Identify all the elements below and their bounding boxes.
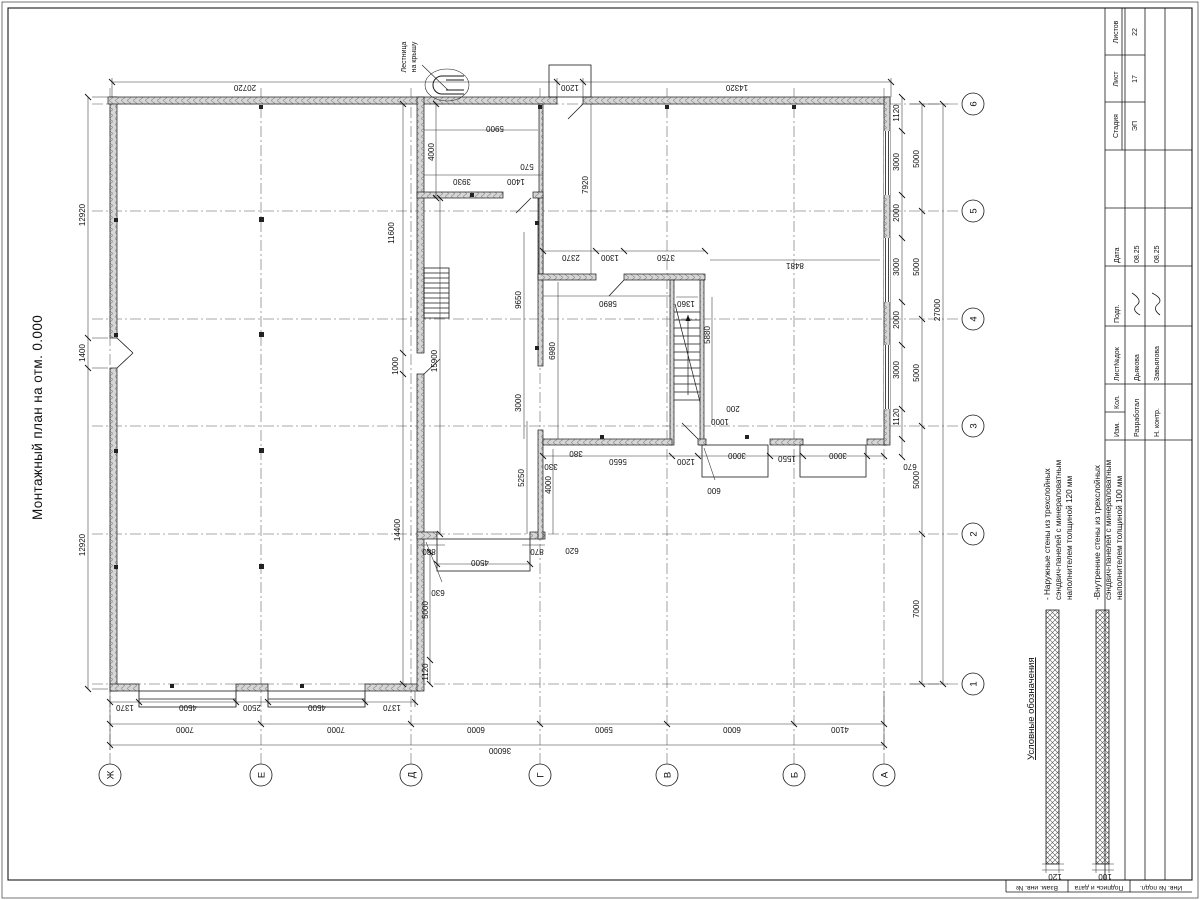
dimension-label: 880: [422, 547, 436, 556]
dimension-label: 870: [530, 547, 544, 556]
dimension-label: 2370: [562, 253, 580, 262]
legend-sample-inner-wall: [1096, 610, 1109, 864]
dimension-label: 670: [903, 462, 917, 471]
dimension-label: 630: [431, 588, 445, 597]
axis-bubble-number: 5: [962, 200, 984, 222]
legend: Условные обозначения 120 - Наружные стен…: [1026, 459, 1124, 881]
dimension-label: 1200: [561, 83, 579, 92]
dimension-label: 8481: [786, 261, 804, 270]
dimension-label: 4000: [544, 476, 553, 494]
dimension-label: 1360: [677, 299, 695, 308]
dimension-label: 3000: [892, 153, 901, 171]
dimension-label: 1370: [383, 703, 401, 712]
walls: [108, 97, 890, 691]
dimension-label: 3000: [829, 451, 847, 460]
dimension-label: 5000: [421, 601, 430, 619]
legend-text: -Внутренние стены из трехслойных: [1093, 465, 1102, 600]
axis-letter: Ж: [106, 770, 117, 779]
axis-bubble-letter: Е: [250, 764, 272, 786]
dimension-label: 3750: [657, 253, 675, 262]
axis-number: 1: [969, 681, 980, 686]
dimension-label: 11600: [387, 222, 396, 244]
door-leaves: [117, 104, 698, 439]
dimension-label: 5650: [609, 457, 627, 466]
dimension-label: 3000: [728, 451, 746, 460]
dimension-label: 1550: [778, 454, 796, 463]
dimension-label: 7000: [327, 725, 345, 734]
dimension-label: 14400: [393, 518, 402, 541]
stamp-role: Разработал: [1133, 399, 1141, 437]
axis-number: 2: [969, 531, 980, 536]
dimension-label: 330: [544, 462, 558, 471]
axis-letter: А: [880, 771, 891, 778]
dimension-label: 5000: [912, 258, 921, 276]
axis-bubble-letter: Б: [783, 764, 805, 786]
gates-and-porches: [139, 65, 866, 707]
roof-ladder-label: Лестница: [401, 41, 408, 72]
dimension-label: 620: [565, 546, 579, 555]
stamp-stage-label: Стадия: [1113, 114, 1120, 138]
dimension-label: 1400: [78, 344, 87, 362]
stamp-sheet-label: Лист: [1113, 71, 1120, 87]
stamp-sheets-label: Листов: [1113, 20, 1120, 43]
dimension-label: 4000: [427, 143, 436, 161]
axis-bubble-number: 6: [962, 93, 984, 115]
stamp-role: Н. контр.: [1154, 408, 1161, 437]
axis-number: 4: [969, 316, 980, 321]
dimension-label: 7000: [912, 600, 921, 618]
axis-number: 5: [969, 208, 980, 213]
dimension-label: 6980: [548, 342, 557, 360]
stair-2: [674, 304, 700, 402]
dimension-label: 14320: [725, 83, 748, 92]
margin-field: Взам. инв. №: [1016, 884, 1058, 891]
dimension-label: 5000: [912, 364, 921, 382]
axis-bubble-letter: А: [873, 764, 895, 786]
dimension-label: 5000: [912, 471, 921, 489]
roof-ladder-icon: [422, 65, 469, 101]
dimension-label: 9650: [514, 291, 523, 309]
dimension-label: 5900: [595, 725, 613, 734]
axis-number: 6: [969, 101, 980, 106]
legend-text: наполнителем толщиной 100 мм: [1115, 475, 1124, 600]
axis-bubble-number: 3: [962, 415, 984, 437]
stamp-col: Подп.: [1114, 304, 1121, 323]
dimension-label: 1120: [892, 104, 901, 122]
dimension-label: 27000: [933, 298, 942, 321]
dimension-label: 12920: [78, 203, 87, 226]
dimension-label: 200: [726, 404, 740, 413]
roof-ladder-label: на крышу: [411, 41, 418, 72]
grid-axis-lines: [92, 88, 960, 764]
axis-bubbles-numbers: 1 2 3 4 5 6: [962, 93, 984, 695]
page-title: Монтажный план на отм. 0.000: [30, 315, 45, 520]
axis-bubble-number: 1: [962, 673, 984, 695]
margin-field: Подпись и дата: [1074, 884, 1123, 891]
dimension-label: 3930: [453, 177, 471, 186]
legend-text: - Наружные стены из трехслойных: [1043, 468, 1052, 600]
margin-field: Инв. № подл.: [1140, 884, 1182, 891]
dimension-label: 4500: [179, 703, 197, 712]
dimension-label: 6000: [467, 725, 485, 734]
dimension-label: 6000: [723, 725, 741, 734]
stamp-col: Кол.: [1114, 395, 1121, 409]
dimension-label: 1400: [507, 177, 525, 186]
legend-sample-outer-wall: [1046, 610, 1059, 864]
dimension-label: 4500: [471, 558, 489, 567]
dimension-label: 2500: [243, 703, 261, 712]
dimension-label: 2000: [892, 204, 901, 222]
legend-text: сэндвич-панелей с минераловатным: [1054, 459, 1063, 600]
signature: [1132, 293, 1140, 315]
dimension-label: 3000: [892, 361, 901, 379]
legend-title: Условные обозначения: [1026, 657, 1037, 760]
stamp-sheet-value: 17: [1132, 75, 1139, 83]
axis-bubble-number: 2: [962, 523, 984, 545]
dimension-label: 12920: [78, 533, 87, 556]
sheet-edge: [2, 2, 1198, 898]
stamp-sheets-value: 22: [1132, 28, 1139, 36]
dimension-label: 20720: [233, 83, 256, 92]
legend-text: наполнителем толщиной 120 мм: [1065, 475, 1074, 600]
dimension-label: 600: [707, 486, 721, 495]
dimension-label: 5880: [703, 326, 712, 344]
dimension-label: 7000: [176, 725, 194, 734]
axis-bubble-letter: Д: [400, 764, 422, 786]
axis-letter: Б: [790, 772, 801, 778]
dimension-label: 15900: [430, 349, 439, 372]
signature: [1152, 293, 1160, 315]
dimension-label: 4500: [308, 703, 326, 712]
axis-letter: Д: [407, 771, 418, 778]
legend-thickness: 120: [1048, 872, 1062, 881]
axis-letter: В: [663, 772, 674, 778]
dimension-label: 570: [520, 162, 534, 171]
dimension-label: 7920: [581, 176, 590, 194]
dimension-label: 2000: [892, 311, 901, 329]
dimension-label: 1000: [711, 417, 729, 426]
title-block: Изм. Кол. Лист№док Подп. Дата Разработал…: [1105, 8, 1192, 880]
dimension-label: 1300: [601, 253, 619, 262]
axis-bubbles-letters: Ж Е Д Г В Б А: [99, 764, 895, 786]
dimension-label: 36000: [488, 746, 511, 755]
stamp-date: 08.25: [1154, 245, 1161, 263]
dimension-label: 5250: [517, 469, 526, 487]
dimension-label: 5000: [912, 150, 921, 168]
dimension-label: 1000: [391, 357, 400, 375]
axis-bubble-letter: Г: [529, 764, 551, 786]
dimension-label: 1200: [677, 457, 695, 466]
axis-number: 3: [969, 423, 980, 428]
dimension-label: 5900: [486, 124, 504, 133]
dimension-label: 3000: [514, 394, 523, 412]
axis-letter: Г: [536, 772, 547, 777]
stamp-date: 08.25: [1134, 245, 1141, 263]
stamp-name: Дьякова: [1134, 354, 1141, 381]
dimension-label: 5890: [599, 299, 617, 308]
axis-letter: Е: [257, 772, 268, 778]
drawing-sheet: Ж Е Д Г В Б А 1 2 3 4 5 6 Монтажный план…: [0, 0, 1200, 900]
stamp-col: Лист№док: [1114, 346, 1121, 381]
stair-1: [424, 268, 449, 318]
dimension-label: 1120: [892, 408, 901, 426]
stamp-name: Завьялова: [1154, 346, 1161, 381]
dimension-label: 3000: [892, 258, 901, 276]
dimension-label: 4100: [831, 725, 849, 734]
screenshot-canvas: Ж Е Д Г В Б А 1 2 3 4 5 6 Монтажный план…: [0, 0, 1200, 900]
axis-bubble-letter: Ж: [99, 764, 121, 786]
dimension-label: 380: [569, 449, 583, 458]
dimension-label: 1120: [421, 663, 430, 681]
dimension-label: 1370: [116, 703, 134, 712]
plan-svg: Ж Е Д Г В Б А 1 2 3 4 5 6 Монтажный план…: [0, 0, 1200, 900]
stamp-col: Дата: [1114, 247, 1121, 263]
stamp-stage-value: ЭП: [1132, 121, 1139, 131]
stamp-col: Изм.: [1114, 422, 1121, 437]
axis-bubble-letter: В: [656, 764, 678, 786]
axis-bubble-number: 4: [962, 308, 984, 330]
